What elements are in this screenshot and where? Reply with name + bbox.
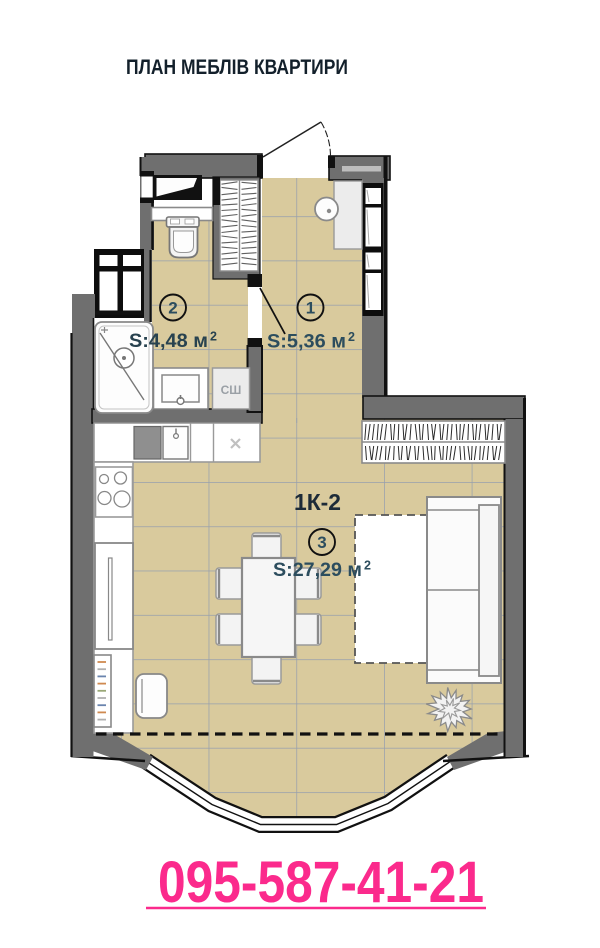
svg-text:S:27,29 м: S:27,29 м [273,560,362,581]
svg-text:1К-2: 1К-2 [294,489,341,515]
svg-text:СШ: СШ [221,383,242,397]
svg-text:095-587-41-21: 095-587-41-21 [158,850,484,915]
svg-text:S:4,48 м: S:4,48 м [129,331,208,352]
svg-text:3: 3 [317,533,326,552]
svg-text:2: 2 [364,559,371,573]
svg-text:ПЛАН МЕБЛІВ КВАРТИРИ: ПЛАН МЕБЛІВ КВАРТИРИ [126,55,348,79]
svg-text:2: 2 [348,330,355,344]
svg-text:S:5,36 м: S:5,36 м [267,332,346,353]
svg-text:2: 2 [210,330,217,344]
svg-text:1: 1 [306,299,315,318]
svg-text:2: 2 [168,299,177,318]
